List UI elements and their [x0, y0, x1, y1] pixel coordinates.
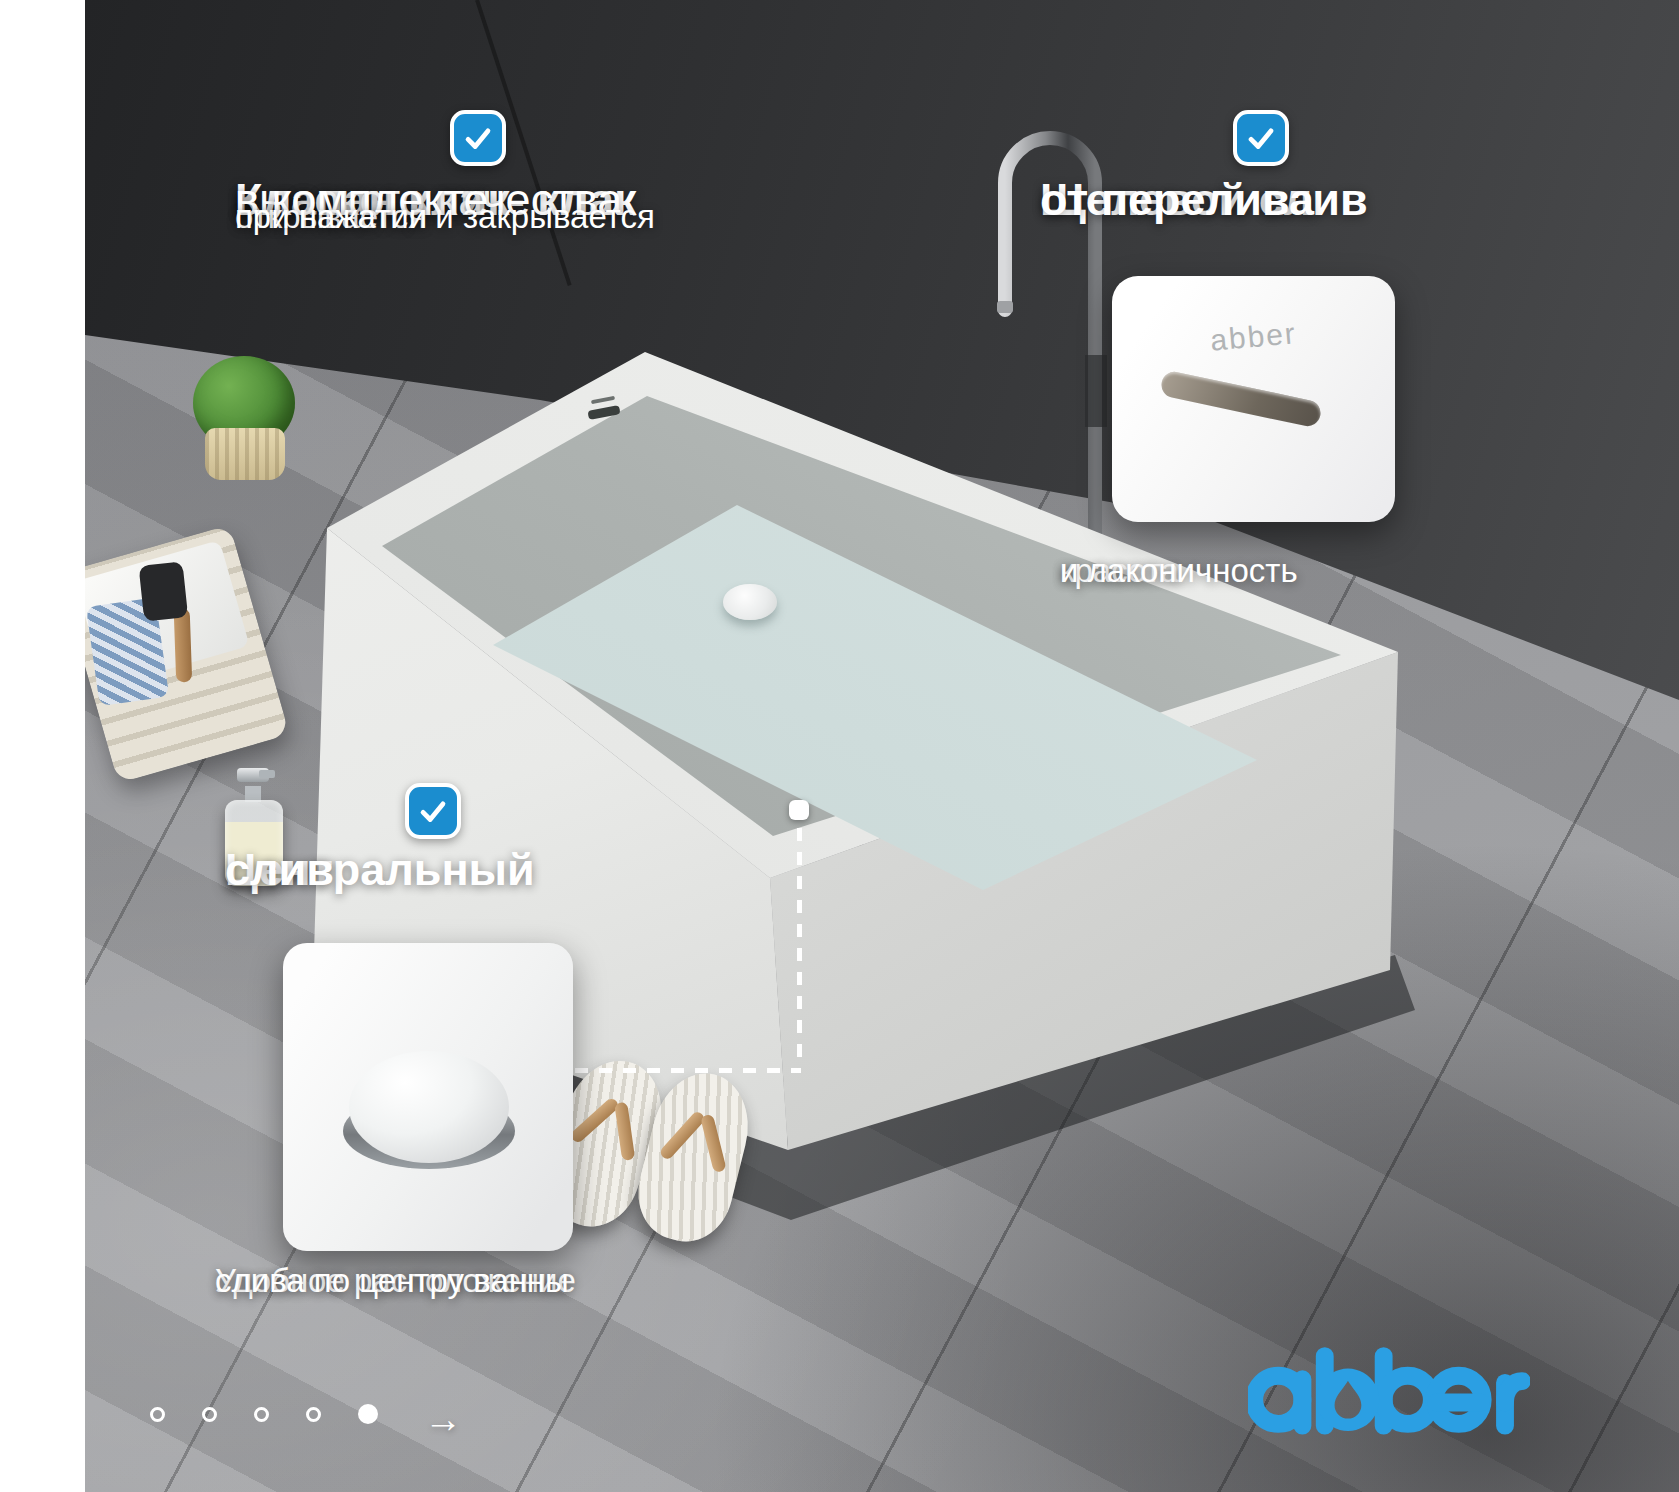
- brush-handle: [174, 608, 193, 683]
- slipper-strap: [700, 1114, 727, 1173]
- abber-logo-engraving: abber: [1112, 308, 1395, 367]
- checkmark-icon: [1233, 110, 1289, 166]
- caption-line: слива по центру ванны: [215, 1262, 569, 1300]
- soap-dispenser-spout: [259, 770, 275, 778]
- slipper-strap: [569, 1096, 621, 1144]
- slipper-strap: [658, 1110, 706, 1162]
- feature-title: от перелива: [1040, 178, 1314, 222]
- caption-line: и лаконичность: [1060, 552, 1298, 590]
- abber-brand-logo: [1248, 1342, 1530, 1438]
- callout-dashed-line-vertical: [797, 828, 802, 1068]
- product-slide: Клапан клик- клак высокого качества в ко…: [0, 0, 1679, 1492]
- drain-white-cap: [349, 1051, 509, 1163]
- carousel-dot-2[interactable]: [202, 1407, 217, 1422]
- abber-logo-graphic: [1248, 1342, 1530, 1438]
- feature-title: слив: [225, 848, 334, 892]
- brush-bristles: [139, 561, 189, 621]
- callout-marker: [789, 800, 809, 820]
- plant-pot: [205, 428, 285, 480]
- feature-clickclack-text: Клапан клик- клак высокого качества в ко…: [235, 178, 725, 198]
- carousel-dots: [150, 1404, 378, 1424]
- overflow-slot-graphic: [1159, 369, 1323, 428]
- carousel-next-arrow[interactable]: →: [424, 1398, 462, 1441]
- checkmark-icon: [405, 783, 461, 839]
- slipper-strap: [614, 1102, 635, 1161]
- drain-inset-photo: [283, 943, 573, 1251]
- checkmark-icon: [450, 110, 506, 166]
- carousel-dot-3[interactable]: [254, 1407, 269, 1422]
- feature-note-line: при нажатии: [235, 198, 427, 236]
- carousel-dot-5[interactable]: [358, 1404, 378, 1424]
- carousel-dot-1[interactable]: [150, 1407, 165, 1422]
- carousel-dot-4[interactable]: [306, 1407, 321, 1422]
- bathtub-drain-cap: [723, 584, 777, 620]
- callout-dashed-line-horizontal: [575, 1068, 801, 1073]
- overflow-inset-photo: abber: [1112, 276, 1395, 522]
- towel-basket: [85, 525, 290, 784]
